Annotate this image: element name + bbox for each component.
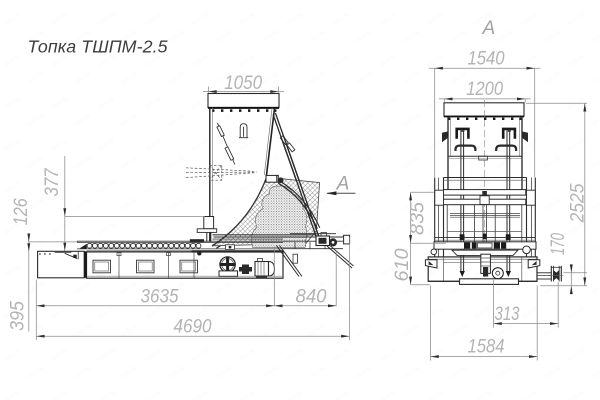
svg-text:1540: 1540: [468, 48, 505, 69]
svg-text:377: 377: [42, 167, 63, 196]
svg-text:840: 840: [296, 286, 327, 307]
svg-text:4690: 4690: [174, 317, 212, 338]
svg-text:1584: 1584: [468, 336, 505, 357]
svg-text:А: А: [336, 174, 350, 195]
svg-text:Топка ТШПМ-2.5: Топка ТШПМ-2.5: [28, 37, 168, 57]
svg-text:2525: 2525: [568, 183, 589, 223]
svg-text:1050: 1050: [224, 73, 262, 94]
svg-text:835: 835: [408, 202, 429, 235]
svg-text:3635: 3635: [141, 287, 179, 308]
svg-text:313: 313: [495, 304, 520, 325]
svg-text:1200: 1200: [466, 79, 503, 100]
svg-text:126: 126: [11, 198, 32, 225]
svg-text:395: 395: [8, 301, 29, 331]
svg-text:610: 610: [392, 248, 413, 281]
svg-text:А: А: [481, 18, 495, 39]
svg-text:170: 170: [548, 233, 569, 255]
